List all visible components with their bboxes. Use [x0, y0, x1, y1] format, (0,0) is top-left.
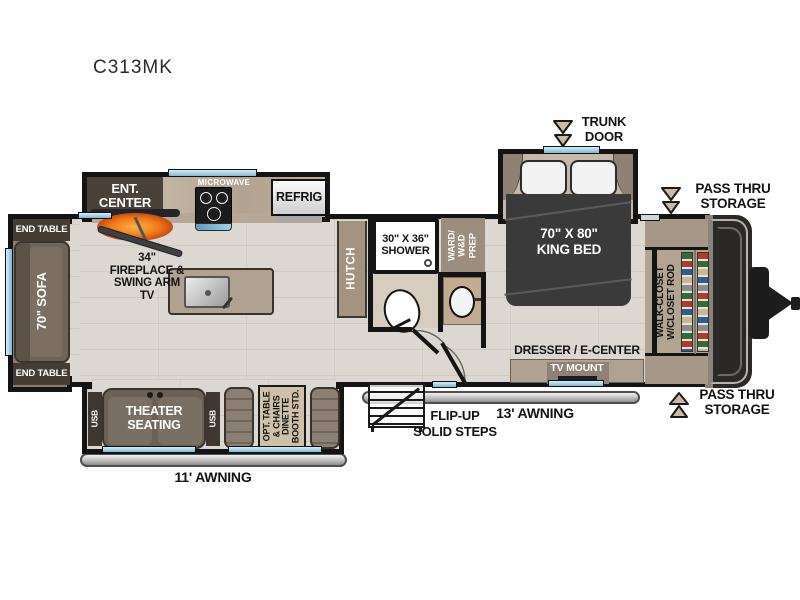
burner-icon [207, 207, 221, 221]
living-top-window [78, 212, 112, 219]
pillow-left [520, 160, 567, 196]
end-table-top-label: END TABLE [16, 225, 68, 235]
vanity-cabinet [443, 277, 483, 325]
pass-thru-bottom-label: PASS THRU STORAGE [694, 388, 780, 418]
end-table-top: END TABLE [13, 219, 70, 241]
trunk-door-label: TRUNK DOOR [577, 115, 631, 145]
closet-cabinet-bottom [645, 353, 708, 384]
dresser-label: DRESSER / E-CENTER [497, 344, 657, 357]
vanity-sink-icon [449, 286, 475, 318]
hanging-clothes-icon [697, 252, 709, 352]
pillow-right [570, 160, 617, 196]
page-title: C313MK [93, 58, 203, 79]
cupholder-icon [147, 392, 153, 398]
stove-vent [195, 223, 232, 231]
hanging-clothes-icon [681, 252, 693, 352]
front-cap [705, 215, 752, 388]
dinette-label: OPT. TABLE & CHAIRS DINETTE BOOTH STD. [263, 384, 302, 448]
bottom-slide-window-right [228, 446, 322, 453]
sofa-label: 70" SOFA [35, 256, 49, 346]
bottom-slide-window-left [102, 446, 196, 453]
microwave-label: MICROWAVE [186, 179, 262, 188]
pass-thru-top-label: PASS THRU STORAGE [686, 182, 780, 212]
hitch-coupler [791, 297, 800, 310]
sofa-window [5, 248, 13, 356]
bedroom-bottom-window [548, 380, 604, 387]
bath-wall-left [368, 218, 373, 332]
theater-seating-label: THEATER SEATING [104, 405, 204, 433]
walk-closet-label: WALK-CLOSET W/CLOSET ROD [655, 253, 677, 351]
tv-mount-label: TV MOUNT [532, 363, 622, 375]
hutch-label: HUTCH [346, 233, 359, 303]
steps-label: FLIP-UP SOLID STEPS [400, 408, 510, 439]
burner-icon [216, 192, 228, 204]
trunk-door-arrow-down-icon [552, 119, 574, 149]
entry-step-window [432, 381, 457, 388]
end-table-bottom-label: END TABLE [16, 369, 68, 379]
bed-fold-line [504, 278, 631, 296]
vanity-wall-top [438, 272, 486, 277]
cooktop-icon [195, 187, 232, 224]
bed-fold-line [504, 201, 631, 221]
awning-11-bar [80, 453, 347, 467]
awning-11-label: 11' AWNING [148, 470, 278, 485]
shower-label: 30" X 36" SHOWER [381, 234, 429, 257]
wardrobe-label: WARD/ W&D PREP [447, 219, 478, 273]
hitch-tongue-icon [767, 285, 793, 321]
bedroom-top-window [640, 214, 660, 221]
kitchen-window [168, 169, 257, 177]
closet-cabinet-top [645, 219, 708, 250]
shower: 30" X 36" SHOWER [372, 218, 439, 274]
end-table-bottom: END TABLE [13, 363, 70, 385]
dinette-bench-left [224, 387, 254, 449]
pass-thru-top-arrow-down-icon [660, 186, 682, 216]
refrig-label: REFRIG [276, 191, 322, 205]
burner-icon [200, 192, 212, 204]
sink-drain-icon [205, 290, 211, 296]
dinette-bench-right [310, 387, 340, 449]
ent-center-label: ENT. CENTER [99, 182, 151, 209]
cupholder-icon [157, 392, 163, 398]
steps-leg [371, 426, 374, 432]
fireplace-label: 34" FIREPLACE & SWING ARM TV [97, 252, 197, 303]
refrigerator: REFRIG [271, 179, 327, 216]
pass-thru-bottom-arrow-up-icon [668, 390, 690, 420]
closet-rod-icon [694, 250, 696, 354]
front-cap-arc-inner [717, 227, 742, 376]
king-bed-label: 70" X 80" KING BED [506, 226, 632, 258]
sofa-back-cushion [16, 243, 30, 361]
bath-wall-divider [438, 272, 443, 332]
usb-right-label: USB [208, 404, 217, 434]
floorplan-stage: C313MK 13' AWNING 11' AWNING END TABLE E… [0, 0, 800, 600]
hitch-jack [749, 267, 769, 339]
shower-head-icon [424, 259, 432, 267]
refrig-base [277, 216, 321, 222]
usb-left-label: USB [90, 404, 99, 434]
